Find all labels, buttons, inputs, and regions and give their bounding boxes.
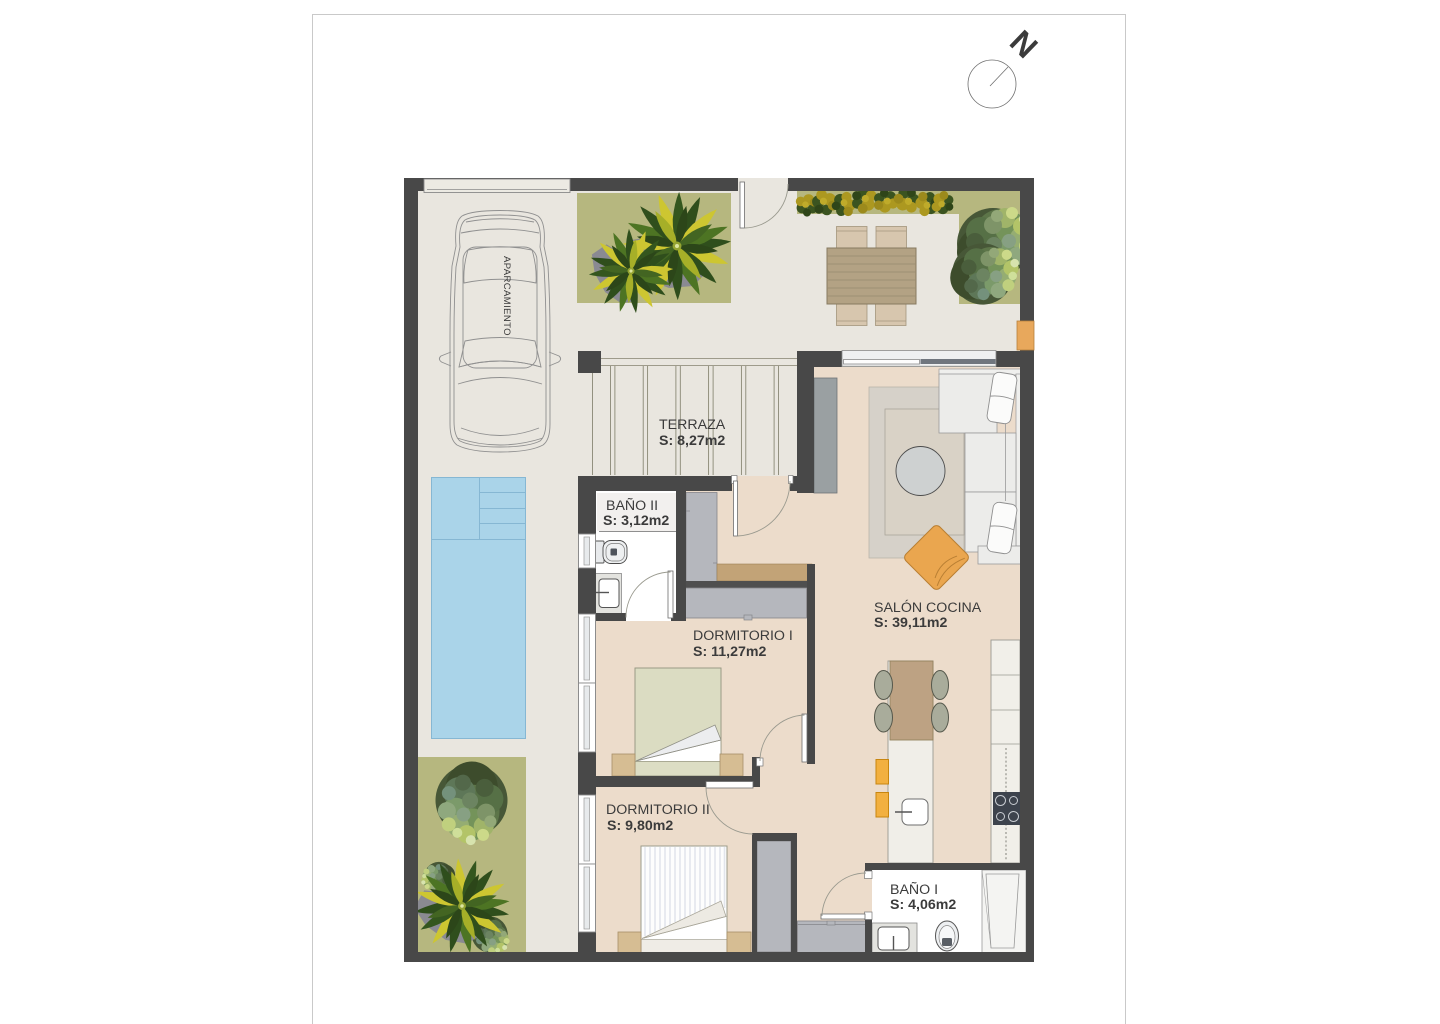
svg-text:S: 3,12m2: S: 3,12m2 <box>603 513 669 529</box>
svg-text:APARCAMIENTO: APARCAMIENTO <box>501 256 512 336</box>
svg-text:S: 4,06m2: S: 4,06m2 <box>890 897 956 913</box>
svg-text:DORMITORIO I: DORMITORIO I <box>693 628 793 644</box>
svg-text:S: 11,27m2: S: 11,27m2 <box>693 644 766 660</box>
svg-text:S: 8,27m2: S: 8,27m2 <box>659 433 725 449</box>
svg-text:BAÑO II: BAÑO II <box>606 497 658 514</box>
svg-text:S: 39,11m2: S: 39,11m2 <box>874 615 947 631</box>
svg-text:TERRAZA: TERRAZA <box>659 417 726 433</box>
svg-text:DORMITORIO II: DORMITORIO II <box>606 802 710 818</box>
svg-text:S: 9,80m2: S: 9,80m2 <box>607 818 673 834</box>
svg-text:SALÓN COCINA: SALÓN COCINA <box>874 599 982 616</box>
svg-text:BAÑO I: BAÑO I <box>890 881 938 898</box>
